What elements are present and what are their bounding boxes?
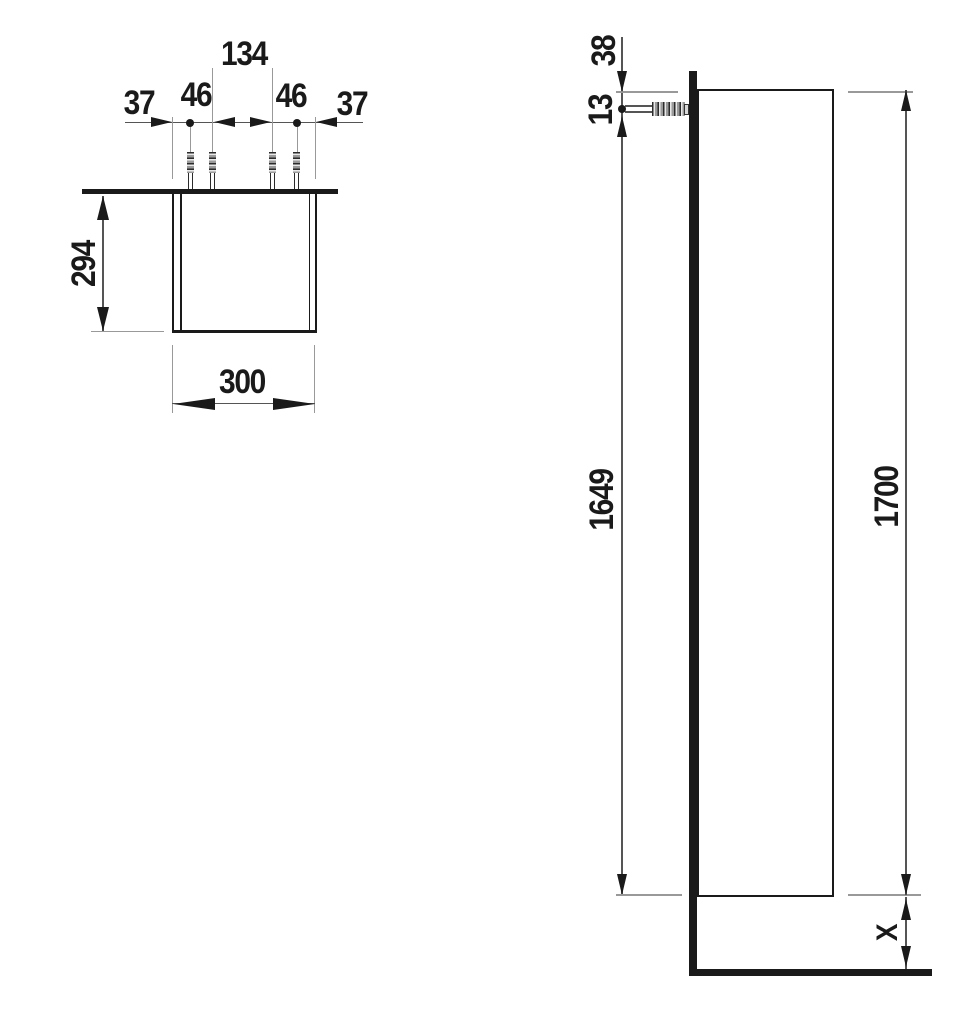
dim-label-37-left: 37 xyxy=(124,86,155,120)
arrowhead-down-icon xyxy=(901,874,911,895)
mounting-dowel-icon xyxy=(187,152,194,173)
dim-label-294: 294 xyxy=(67,241,101,287)
arrowhead-down-icon xyxy=(617,71,627,92)
dowel-sleeve xyxy=(270,173,275,189)
cabinet-outline xyxy=(697,89,834,897)
screw-shaft-line-bottom xyxy=(625,111,653,112)
arrowhead-left-icon xyxy=(173,398,215,410)
dim-label-46-right: 46 xyxy=(276,79,307,113)
cabinet-bottom-panel xyxy=(172,330,317,333)
dim-label-1649: 1649 xyxy=(585,469,619,530)
arrowhead-up-icon xyxy=(97,196,109,220)
extension-line-bottom xyxy=(91,331,164,332)
cabinet-top-panel xyxy=(82,189,338,194)
dim-label-37-right: 37 xyxy=(337,87,368,121)
mounting-dowel-icon xyxy=(652,102,685,116)
screw-center-line-2 xyxy=(212,68,213,153)
screw-center-line-4 xyxy=(297,126,298,153)
arrowhead-down-icon xyxy=(901,946,911,967)
cabinet-technical-drawing: 134 37 46 46 37 294 300 xyxy=(0,0,964,1024)
cabinet-side-left-inner xyxy=(180,194,182,330)
arrowhead-down-icon xyxy=(97,307,109,331)
dim-label-46-left: 46 xyxy=(181,78,212,112)
arrowhead-right-icon xyxy=(250,117,271,127)
wall-line xyxy=(689,71,697,976)
dowel-sleeve xyxy=(188,173,193,189)
extension-line-cabinet-bottom-left xyxy=(616,894,682,895)
extension-line-left-edge xyxy=(172,117,173,179)
mounting-dowel-icon xyxy=(293,152,300,173)
screw-center-line-3 xyxy=(272,68,273,153)
mounting-dowel-icon xyxy=(209,152,216,173)
arrowhead-left-icon xyxy=(316,117,337,127)
dim-label-13: 13 xyxy=(584,95,618,126)
arrowhead-left-icon xyxy=(214,117,235,127)
cabinet-side-left-outer xyxy=(172,194,174,332)
arrowhead-right-icon xyxy=(273,398,315,410)
arrowhead-up-icon xyxy=(901,90,911,111)
dowel-sleeve xyxy=(210,173,215,189)
dim-label-38: 38 xyxy=(587,36,621,67)
cabinet-side-right-inner xyxy=(309,194,311,330)
arrowhead-down-icon xyxy=(617,874,627,895)
dim-label-300: 300 xyxy=(219,365,265,399)
mounting-dowel-icon xyxy=(269,152,276,173)
dim-label-1700: 1700 xyxy=(870,466,904,527)
screw-dot-left xyxy=(186,119,194,127)
dowel-collar xyxy=(684,104,689,115)
left-dimension-line xyxy=(621,37,622,895)
screw-dot-right xyxy=(293,119,301,127)
arrowhead-up-icon xyxy=(901,899,911,920)
dowel-sleeve xyxy=(294,173,299,189)
dim-label-134: 134 xyxy=(221,37,267,71)
floor-line xyxy=(689,969,932,976)
dim-label-x: X xyxy=(873,925,903,941)
screw-center-line-1 xyxy=(190,126,191,153)
screw-shaft-line-top xyxy=(625,105,653,106)
cabinet-side-right-outer xyxy=(315,194,317,332)
